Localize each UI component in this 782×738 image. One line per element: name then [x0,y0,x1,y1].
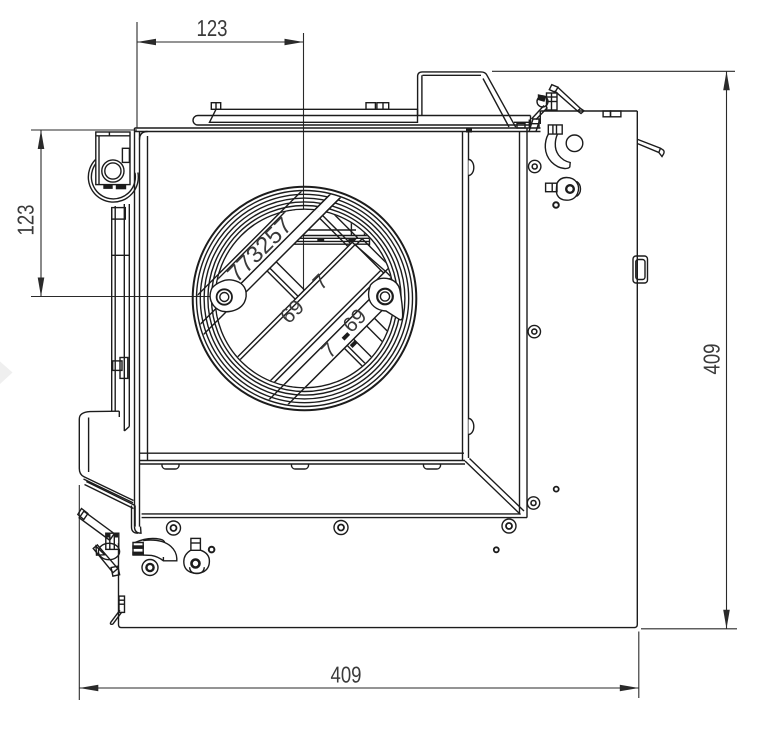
svg-text:123: 123 [13,205,39,236]
svg-text:409: 409 [699,344,725,375]
svg-text:409: 409 [331,662,362,688]
svg-text:123: 123 [197,15,228,41]
